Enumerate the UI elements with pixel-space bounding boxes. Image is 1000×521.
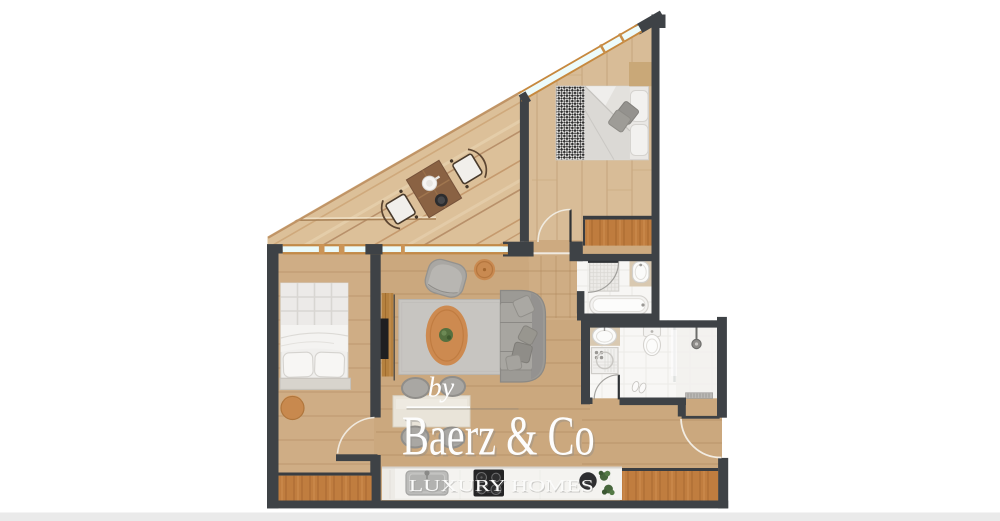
svg-text:by: by (428, 373, 455, 404)
svg-text:Baerz & Co: Baerz & Co (402, 404, 595, 466)
svg-text:LUXURY HOMES: LUXURY HOMES (409, 476, 594, 495)
